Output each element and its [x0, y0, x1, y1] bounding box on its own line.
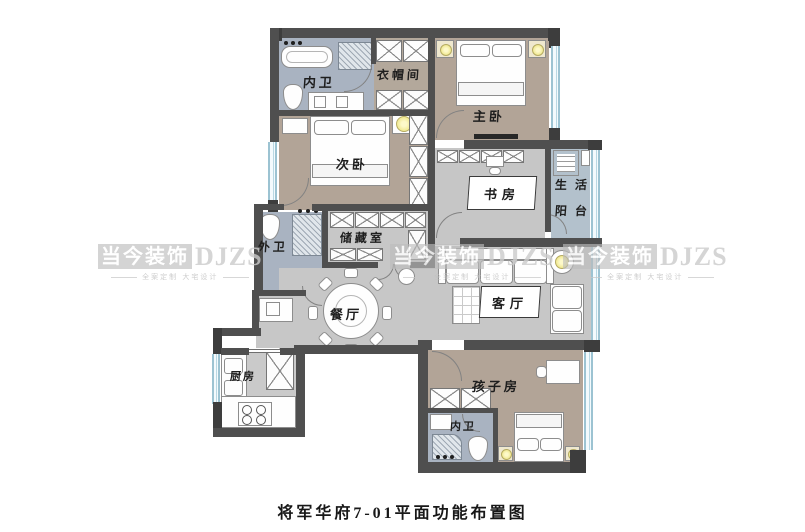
lamp-icon	[440, 44, 452, 56]
wall-segment	[376, 110, 428, 116]
room-label-bath-kids: 内卫	[449, 418, 476, 434]
wall-segment	[254, 204, 284, 210]
wall-segment	[254, 290, 306, 296]
furniture-icon	[266, 302, 280, 316]
room-label-balcony-top: 生活	[554, 176, 595, 193]
wall-segment	[545, 148, 551, 232]
wall-segment	[418, 345, 428, 473]
room-label-bath-master: 内卫	[302, 72, 335, 91]
watermark-dash-line	[223, 277, 249, 278]
wall-segment	[322, 262, 378, 268]
watermark-dash-line	[688, 277, 714, 278]
pillow-icon	[540, 438, 562, 451]
lamp-icon	[532, 44, 544, 56]
side-table-icon	[452, 286, 480, 324]
ring-icon	[256, 405, 266, 415]
sink-icon	[314, 96, 326, 108]
ring-icon	[242, 415, 252, 425]
wall-segment	[410, 262, 428, 268]
cabinet-icon	[409, 114, 428, 145]
wall-segment	[277, 110, 376, 116]
watermark-brand-en: DJZS	[657, 244, 728, 269]
wall-segment	[428, 38, 435, 268]
ring-icon	[242, 405, 252, 415]
window	[268, 142, 277, 202]
cabinet-icon	[409, 146, 428, 177]
sofa-cushion-icon	[480, 260, 513, 284]
ring-icon	[256, 415, 266, 425]
room-label-kids-room: 孩子房	[471, 376, 520, 395]
wall-segment	[270, 28, 279, 142]
watermark-brand-cn: 当今装饰	[98, 244, 192, 269]
wall-segment	[418, 340, 432, 350]
watermark-tagline: 全案定制 大宅设计	[142, 272, 218, 282]
chair-icon	[382, 306, 392, 320]
chair-icon	[536, 366, 547, 378]
cabinet-icon	[330, 212, 354, 228]
cabinet-icon	[330, 248, 356, 261]
wall-corner-block	[584, 340, 600, 352]
cabinet-icon	[357, 248, 383, 261]
pillow-icon	[351, 120, 386, 135]
room-label-living: 客厅	[479, 286, 541, 318]
wall-segment	[464, 140, 540, 149]
spotlight-icon	[298, 41, 302, 45]
chair-icon	[344, 268, 358, 278]
cabinet-icon	[408, 230, 426, 260]
pillow-icon	[517, 438, 539, 451]
cabinet-icon	[376, 40, 402, 62]
wall-segment	[493, 408, 498, 462]
room-label-second-bedroom: 次卧	[335, 154, 368, 173]
wall-segment	[294, 345, 428, 354]
room-label-study: 书房	[467, 176, 537, 210]
cabinet-icon	[405, 212, 426, 228]
cabinet-icon	[376, 90, 402, 110]
shower-icon	[292, 214, 322, 256]
watermark-tagline-row: 全案定制 大宅设计	[98, 272, 263, 282]
room-label-kitchen: 厨房	[229, 368, 256, 384]
wall-segment	[428, 408, 498, 413]
wall-segment	[213, 428, 305, 437]
cabinet-icon	[355, 212, 379, 228]
washer-icon	[553, 150, 579, 176]
nightstand-icon	[282, 118, 308, 134]
sofa-cushion-icon	[514, 260, 547, 284]
room-label-balcony-bottom: 阳台	[554, 202, 595, 219]
wall-segment	[371, 38, 376, 64]
spotlight-icon	[450, 455, 454, 459]
wall-corner-block	[570, 450, 586, 473]
blanket-icon	[516, 414, 562, 428]
desk-icon	[486, 156, 504, 167]
pillow-icon	[460, 44, 490, 57]
furniture-icon	[286, 51, 328, 63]
spotlight-icon	[298, 209, 302, 213]
wall-segment	[322, 206, 328, 268]
sofa-icon	[438, 248, 446, 284]
vanity-icon	[430, 414, 452, 430]
spotlight-icon	[436, 455, 440, 459]
watermark: 当今装饰 DJZS 全案定制 大宅设计	[98, 244, 263, 282]
floor-plan: 内卫 衣帽间 主卧 次卧 书房 生活 阳台 外卫 储藏室 餐厅 客厅 厨房 孩子…	[0, 0, 805, 532]
spotlight-icon	[284, 41, 288, 45]
pillow-icon	[492, 44, 522, 57]
lamp-icon	[555, 255, 569, 269]
cabinet-icon	[266, 352, 294, 390]
wall-segment	[312, 204, 428, 211]
wall-corner-block	[588, 140, 602, 150]
wall-segment	[221, 348, 249, 355]
cabinet-icon	[403, 40, 429, 62]
blanket-icon	[458, 82, 524, 96]
wall-segment	[460, 238, 602, 247]
watermark-tagline: 全案定制 大宅设计	[607, 272, 683, 282]
window	[551, 46, 560, 130]
spotlight-icon	[291, 41, 295, 45]
cabinet-icon	[503, 150, 524, 163]
watermark-dash-line	[111, 277, 137, 278]
room-label-storage: 储藏室	[339, 229, 385, 246]
cabinet-icon	[459, 150, 480, 163]
spotlight-icon	[306, 209, 310, 213]
furniture-icon	[552, 286, 582, 309]
watermark-brand-en: DJZS	[192, 244, 263, 269]
entry-ornament-icon	[398, 268, 415, 285]
tv-icon	[474, 134, 518, 139]
furniture-icon	[552, 310, 582, 332]
plan-caption: 将军华府7-01平面功能布置图	[0, 499, 805, 523]
sofa-cushion-icon	[446, 260, 479, 284]
room-label-bath-guest: 外卫	[257, 238, 288, 255]
room-label-cloakroom: 衣帽间	[376, 66, 422, 83]
desk-icon	[546, 360, 580, 384]
wall-segment	[270, 28, 560, 38]
window	[212, 354, 220, 404]
wall-segment	[464, 340, 588, 350]
sink-icon	[336, 96, 348, 108]
spotlight-icon	[443, 455, 447, 459]
cabinet-icon	[437, 150, 458, 163]
sliding-door-icon	[248, 349, 281, 353]
wall-segment	[418, 462, 584, 473]
cabinet-icon	[403, 90, 429, 110]
window	[584, 352, 593, 450]
chair-icon	[489, 167, 501, 175]
sofa-icon	[444, 248, 548, 260]
watermark-row: 当今装饰 DJZS	[98, 244, 263, 269]
room-label-dining: 餐厅	[329, 304, 362, 323]
cabinet-icon	[380, 212, 404, 228]
lamp-icon	[501, 449, 512, 460]
wall-segment	[296, 348, 305, 437]
pillow-icon	[314, 120, 349, 135]
chair-icon	[308, 306, 318, 320]
sink-icon	[581, 150, 590, 166]
room-label-master-bedroom: 主卧	[472, 106, 505, 125]
cabinet-icon	[430, 388, 460, 410]
